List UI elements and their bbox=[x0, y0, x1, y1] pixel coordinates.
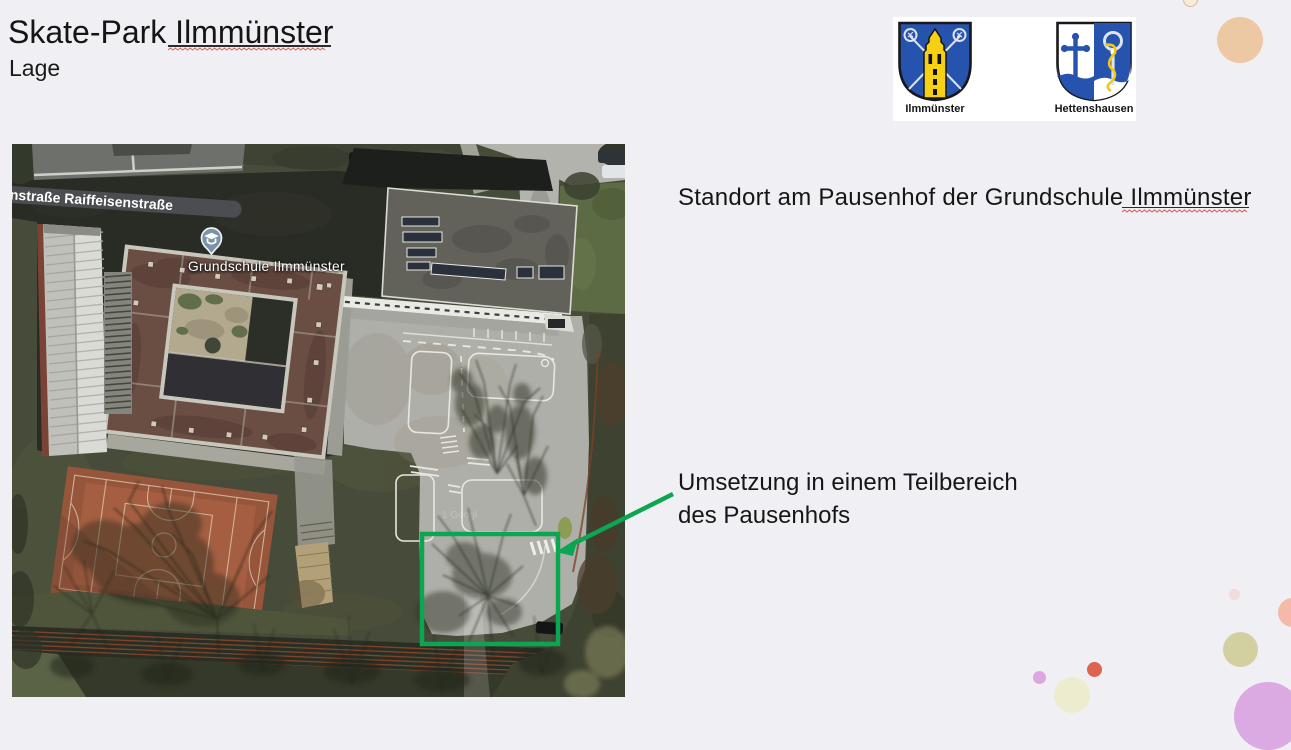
svg-text:Grundschule Ilmmünster: Grundschule Ilmmünster bbox=[188, 259, 345, 274]
svg-text:1 Googl: 1 Googl bbox=[442, 510, 477, 521]
